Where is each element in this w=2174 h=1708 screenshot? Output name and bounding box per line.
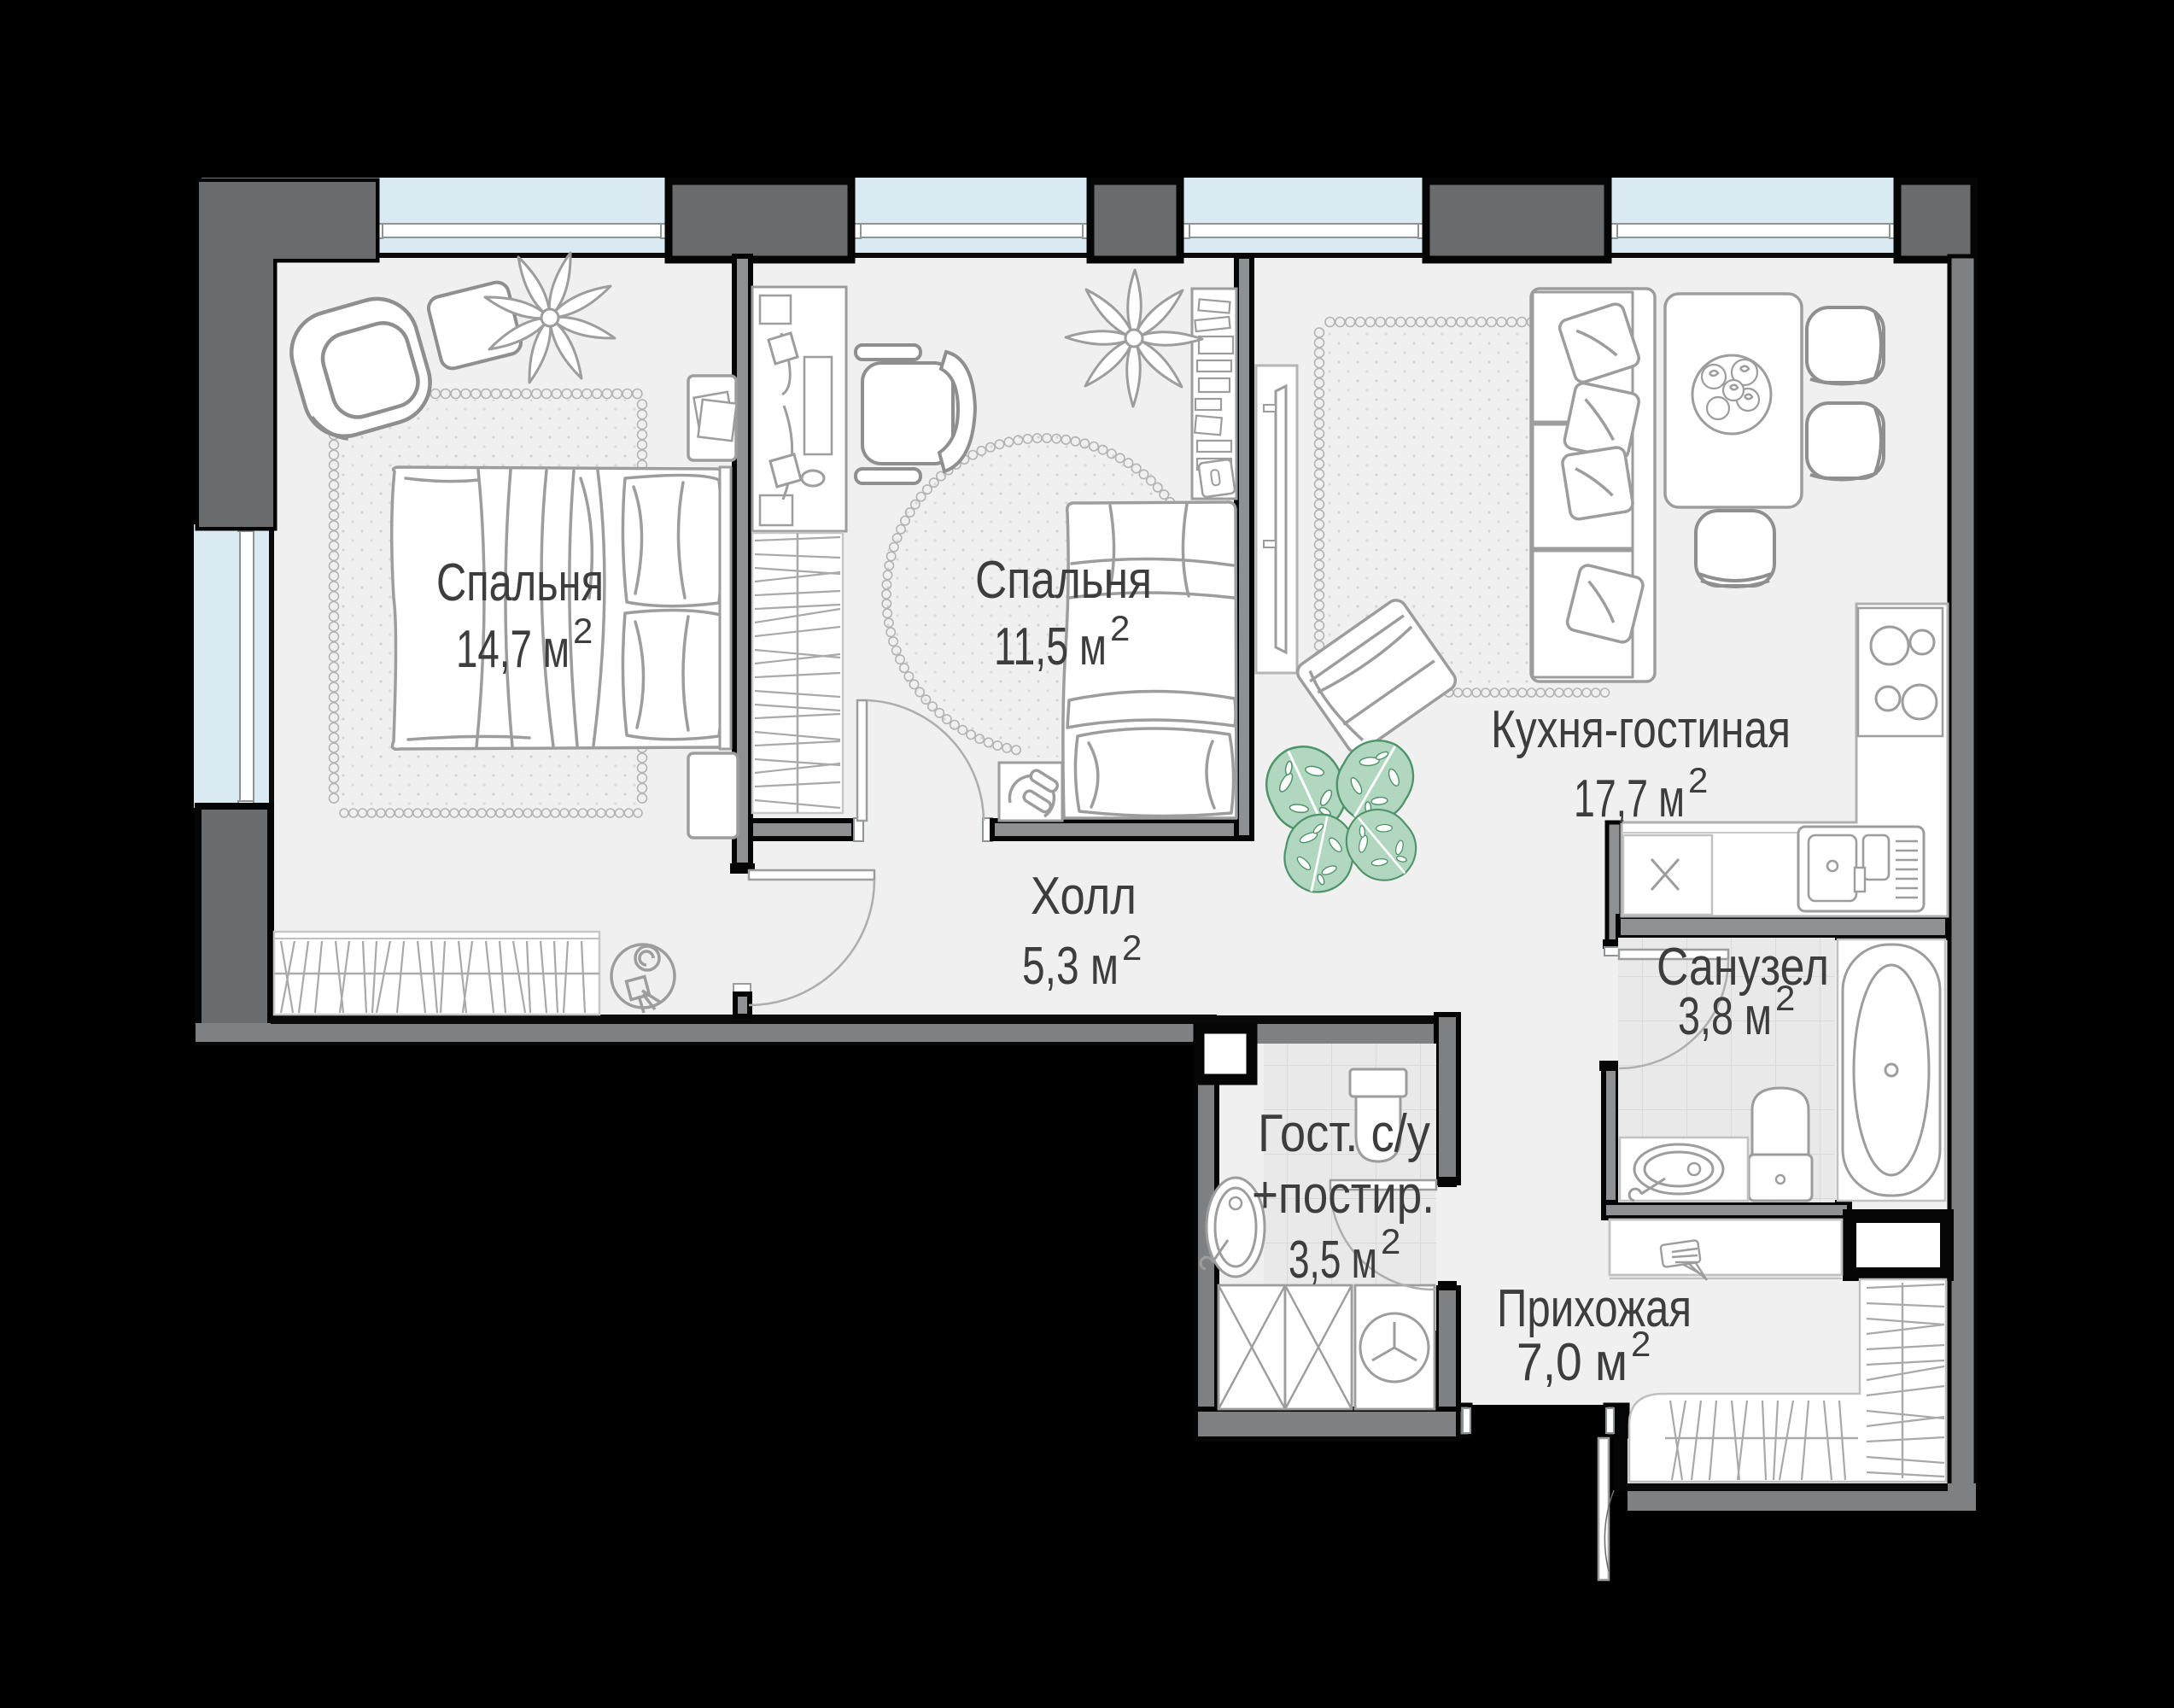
svg-text:7,0 м: 7,0 м xyxy=(1517,1333,1628,1392)
svg-text:2: 2 xyxy=(1775,978,1795,1018)
svg-text:Гост. с/у: Гост. с/у xyxy=(1258,1104,1430,1163)
svg-text:2: 2 xyxy=(573,611,593,651)
svg-text:Кухня-гостиная: Кухня-гостиная xyxy=(1491,700,1791,759)
svg-text:Прихожая: Прихожая xyxy=(1497,1279,1692,1338)
svg-text:11,5 м: 11,5 м xyxy=(994,617,1107,676)
svg-text:3,8 м: 3,8 м xyxy=(1678,987,1772,1046)
svg-text:3,5 м: 3,5 м xyxy=(1289,1231,1377,1290)
svg-text:Холл: Холл xyxy=(1031,867,1137,926)
svg-text:14,7 м: 14,7 м xyxy=(456,620,570,679)
svg-text:2: 2 xyxy=(1381,1221,1400,1261)
svg-text:Спальня: Спальня xyxy=(436,553,604,612)
svg-text:2: 2 xyxy=(1631,1324,1651,1364)
svg-text:2: 2 xyxy=(1688,760,1708,800)
svg-text:17,7 м: 17,7 м xyxy=(1574,769,1685,828)
svg-text:Спальня: Спальня xyxy=(975,551,1152,610)
svg-text:2: 2 xyxy=(1122,927,1142,968)
svg-text:+постир.: +постир. xyxy=(1252,1166,1435,1225)
svg-text:5,3 м: 5,3 м xyxy=(1022,937,1119,996)
svg-text:2: 2 xyxy=(1110,608,1130,648)
